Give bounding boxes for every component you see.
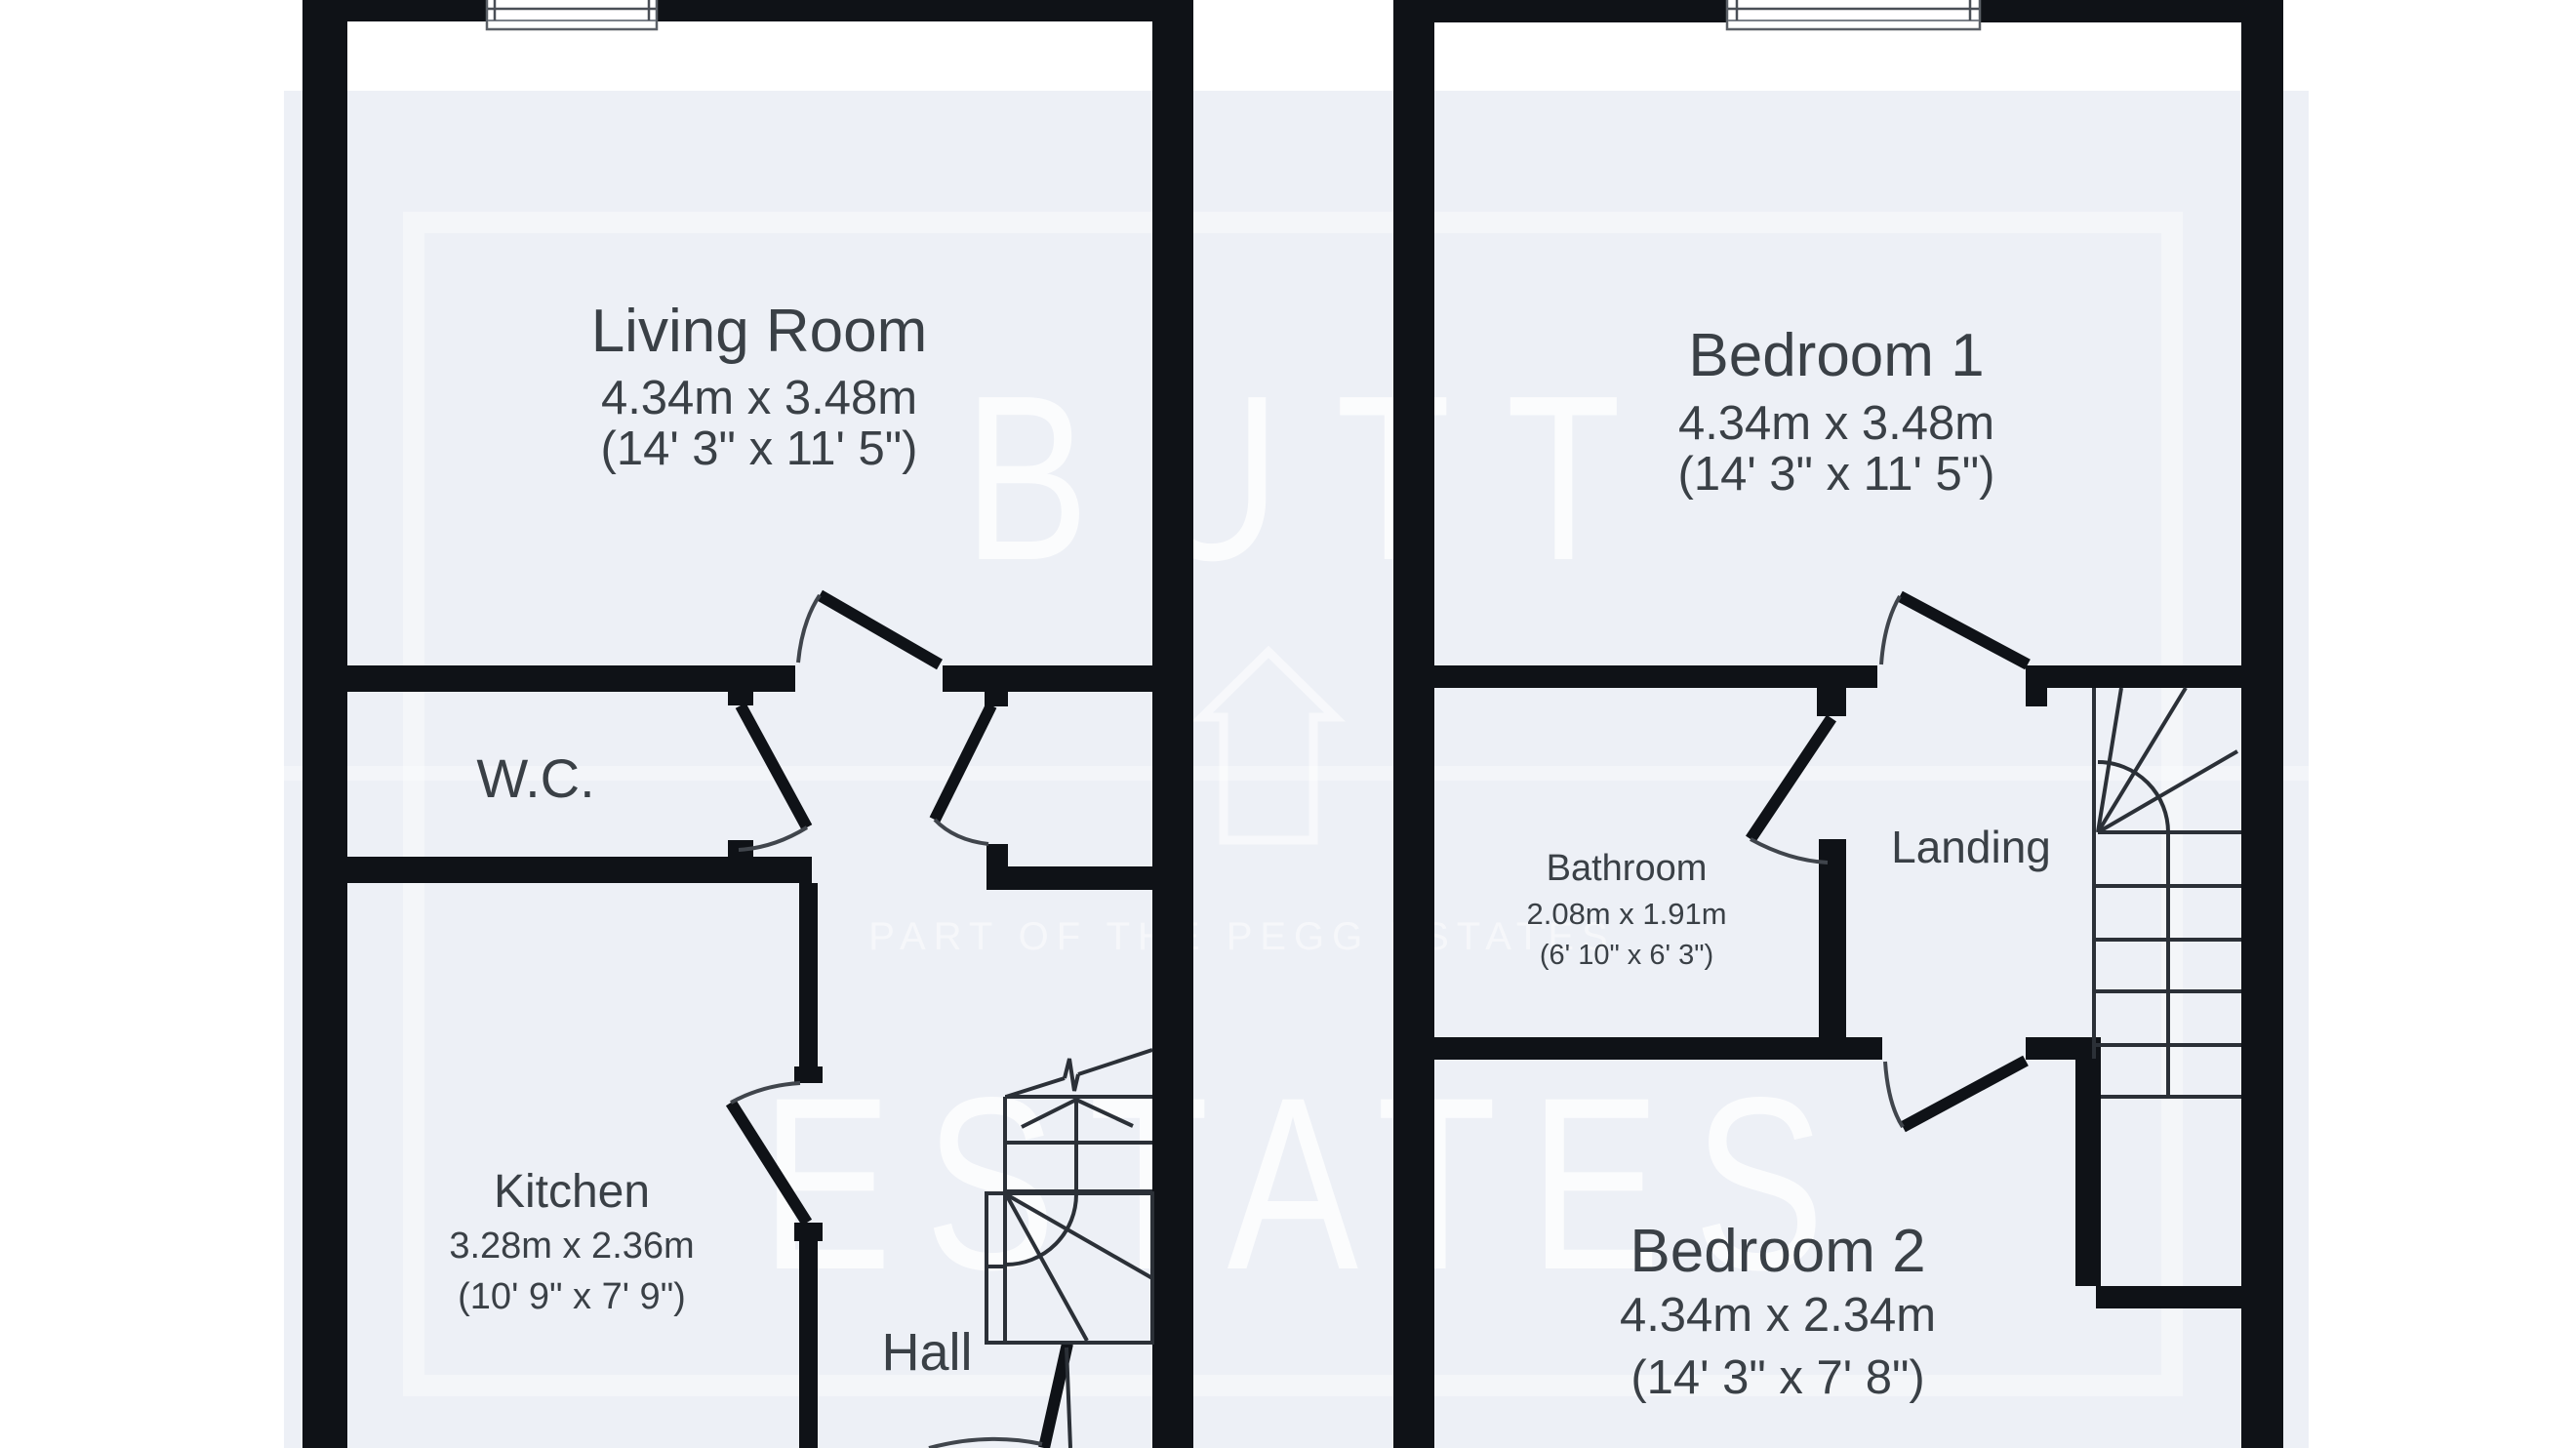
- svg-text:Bedroom 1: Bedroom 1: [1688, 322, 1984, 389]
- svg-text:Bedroom 2: Bedroom 2: [1630, 1218, 1925, 1285]
- svg-text:3.28m x 2.36m: 3.28m x 2.36m: [449, 1226, 694, 1267]
- svg-text:4.34m x 3.48m: 4.34m x 3.48m: [1678, 397, 1994, 450]
- svg-text:Hall: Hall: [881, 1323, 972, 1382]
- svg-text:2.08m x 1.91m: 2.08m x 1.91m: [1526, 897, 1726, 931]
- svg-text:W.C.: W.C.: [476, 747, 594, 809]
- svg-text:(14' 3" x 7' 8"): (14' 3" x 7' 8"): [1630, 1351, 1924, 1404]
- svg-text:(14' 3" x 11' 5"): (14' 3" x 11' 5"): [601, 422, 918, 475]
- svg-text:4.34m x 3.48m: 4.34m x 3.48m: [601, 372, 917, 424]
- svg-text:(14' 3" x 11' 5"): (14' 3" x 11' 5"): [1678, 448, 1995, 501]
- svg-text:(10' 9" x 7' 9"): (10' 9" x 7' 9"): [458, 1276, 686, 1317]
- svg-text:Landing: Landing: [1891, 822, 2051, 872]
- svg-text:(6' 10" x 6' 3"): (6' 10" x 6' 3"): [1540, 940, 1713, 971]
- svg-text:PART OF THE PEGG ESTATES: PART OF THE PEGG ESTATES: [868, 915, 1615, 958]
- svg-text:Kitchen: Kitchen: [494, 1166, 650, 1218]
- svg-text:Bathroom: Bathroom: [1547, 848, 1708, 889]
- svg-text:Living Room: Living Room: [591, 298, 928, 365]
- svg-text:4.34m x 2.34m: 4.34m x 2.34m: [1620, 1289, 1936, 1342]
- svg-text:BUTT: BUTT: [964, 346, 1677, 609]
